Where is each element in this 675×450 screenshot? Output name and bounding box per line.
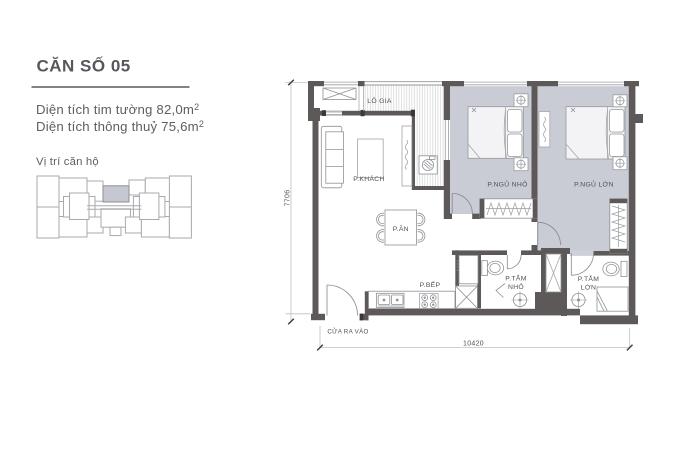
svg-text:CỬA RA VÀO: CỬA RA VÀO bbox=[327, 329, 368, 336]
svg-text:P.TẮM: P.TẮM bbox=[578, 274, 599, 283]
svg-text:Diện tích thông thuỷ 75,6m2: Diện tích thông thuỷ 75,6m2 bbox=[36, 119, 204, 134]
svg-text:10420: 10420 bbox=[463, 340, 484, 347]
svg-text:LÔ GIA: LÔ GIA bbox=[367, 96, 392, 105]
svg-text:P.KHÁCH: P.KHÁCH bbox=[353, 174, 384, 183]
svg-text:P.NGỦ LỚN: P.NGỦ LỚN bbox=[574, 180, 614, 189]
svg-text:NHỎ: NHỎ bbox=[508, 282, 524, 291]
svg-text:P.NGỦ NHỎ: P.NGỦ NHỎ bbox=[487, 180, 527, 189]
svg-text:Diện tích tim tường 82,0m2: Diện tích tim tường 82,0m2 bbox=[36, 102, 199, 117]
svg-text:Vị trí căn hộ: Vị trí căn hộ bbox=[36, 156, 99, 168]
svg-text:LỚN: LỚN bbox=[581, 283, 596, 292]
svg-text:CĂN SỐ 05: CĂN SỐ 05 bbox=[37, 56, 131, 76]
svg-text:P.ĂN: P.ĂN bbox=[393, 224, 409, 233]
svg-text:P.TẮM: P.TẮM bbox=[505, 274, 526, 283]
svg-text:7706: 7706 bbox=[285, 190, 292, 207]
